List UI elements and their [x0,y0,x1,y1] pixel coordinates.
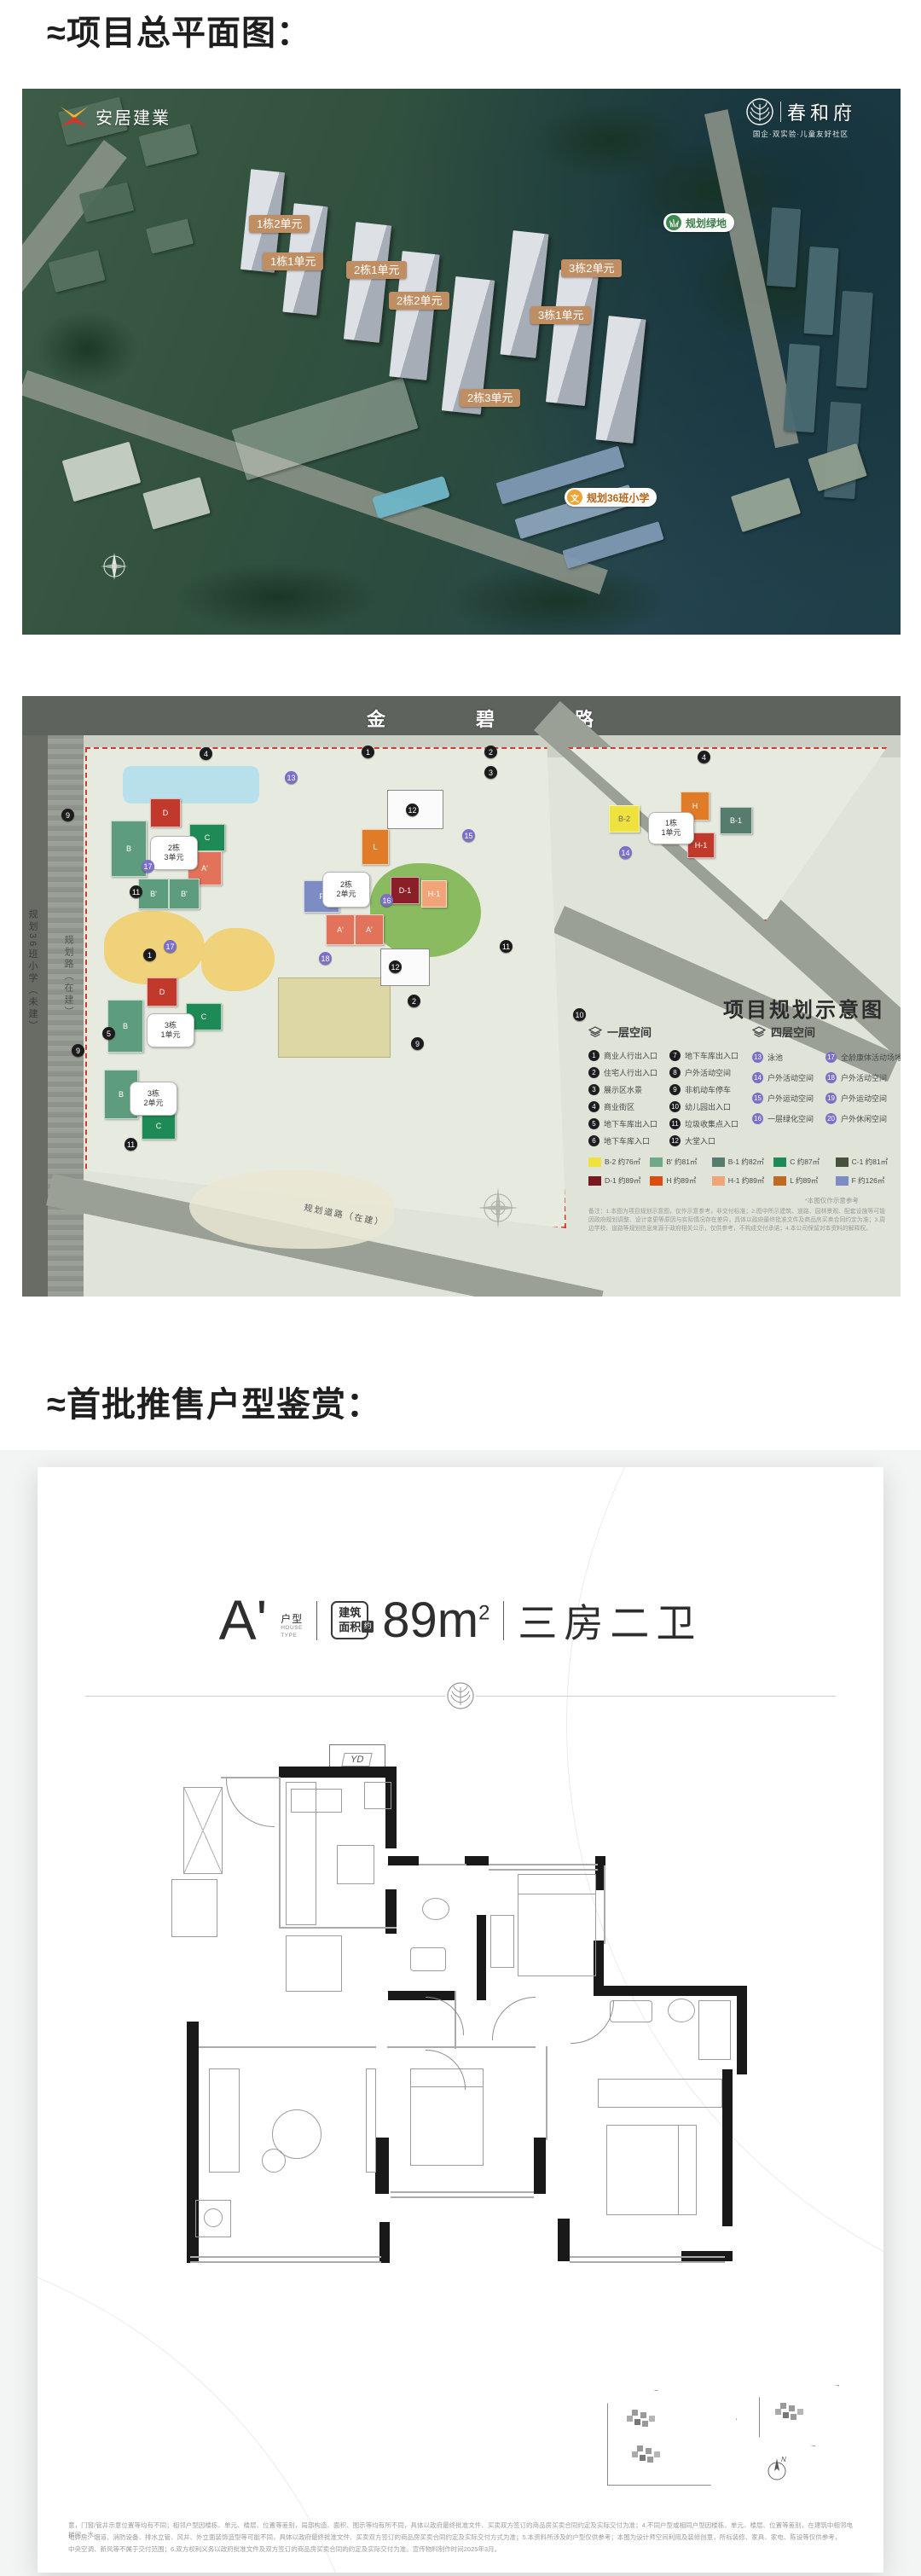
header-divider [503,1601,504,1640]
unit-block: D [150,798,181,827]
unit-swatch: H 约89㎡ [650,1175,706,1186]
furniture-outline [204,2208,223,2227]
forest-blob [36,310,138,387]
legend-item: 8户外活动空间 [669,1064,739,1081]
building-block [767,207,801,287]
floorplan-header: A' 户型 HOUSE TYPE 建筑 面积 约 89m2 三房二卫 [38,1592,883,1649]
unit-swatch: C-1 约81㎡ [836,1157,892,1167]
logo-divider [780,102,781,122]
key-plan-cluster [632,2410,638,2416]
forest-blob [534,102,687,179]
compass-rose-icon [474,1184,522,1232]
furniture-outline [426,1997,464,2035]
unit-block: B [107,1000,143,1053]
unit-block: L [362,829,389,865]
plan-marker: 17 [164,940,177,953]
thin-wall-line [190,2256,381,2258]
furniture-outline [286,1935,342,1992]
legend-first-floor: 一层空间 1商业人行出入口2住宅人行出入口3展示区水景4商业街区5地下车库出入口… [588,1024,739,1149]
thin-wall-line [279,1927,397,1929]
thin-wall-line [190,2261,381,2263]
plan-marker: 13 [285,771,298,784]
ac-platform [183,1787,223,1874]
left-road-label: 规划路（在建） [61,935,75,1018]
furniture-outline [492,1997,536,2040]
thin-wall-line [391,2191,534,2193]
amenity-area [123,766,259,804]
legend-item: 5地下车库出入口 [588,1115,657,1132]
floorplan-disclaimer: 中央空调、新风等不属于交付范围；6.双方权利义务以政府批准文件及双方签订的商品房… [68,2545,853,2555]
unit-subtitle: 户型 HOUSE TYPE [281,1614,303,1639]
tower-label: 1栋2单元 [249,215,310,233]
plan-marker: 9 [61,809,74,821]
floorplan-disclaimer: 电井房、烟道、消防设备、排水立管、风井、外立面装饰造型等可能不同，具体以政府最终… [68,2533,853,2543]
building-block [139,124,198,166]
key-plan-right [759,2385,839,2446]
wall-segment [558,2219,570,2261]
furniture-outline [410,1947,446,1971]
unit-swatch: L 约89㎡ [773,1175,830,1186]
tower-core-label: 3栋 2单元 [130,1082,177,1116]
thin-wall-line [387,2046,536,2048]
plan-marker: 12 [389,960,402,973]
school-badge: 文 规划36班小学 [565,488,657,507]
legend-item: 4商业街区 [588,1098,657,1115]
tower-label: 1栋1单元 [263,252,323,270]
furniture-outline [364,1782,391,1809]
legend-fourth-floor: 四层空间 13泳池14户外活动空间15户外运动空间16一层绿化空间17全龄康体活… [752,1024,901,1128]
tower-label: 2栋2单元 [389,292,449,310]
wall-segment [737,1986,747,2074]
thin-wall-line [279,1777,281,1929]
unit-block: D-1 [391,877,420,904]
wall-segment [594,1986,747,1996]
building-block [62,442,142,502]
road-name-char: 金 [367,705,385,732]
furniture-outline [518,1874,596,1894]
unit-color-legend: B-2 约76㎡B' 约81㎡B-1 约82㎡C 约87㎡C-1 约81㎡D-1… [588,1157,892,1186]
floorplan-card[interactable]: A' 户型 HOUSE TYPE 建筑 面积 约 89m2 三房二卫 YD [38,1467,883,2573]
legend-item: 1商业人行出入口 [588,1047,657,1064]
plan-marker: 11 [130,885,142,898]
project-tower [344,222,391,343]
key-plan-cluster [637,2445,643,2451]
legend-item: 15户外运动空间 [752,1088,814,1108]
wall-segment [279,1767,397,1778]
plan-marker: 4 [698,751,710,763]
legend-item: 9非机动车停车 [669,1081,739,1098]
unit-swatch: C 约87㎡ [773,1157,830,1167]
top-road [22,696,901,735]
legend-item: 3展示区水景 [588,1081,657,1098]
road-name-char: 碧 [476,705,495,732]
legend-item: 2住宅人行出入口 [588,1064,657,1081]
furniture-outline [426,2050,466,2090]
legend-item: 11垃圾收集点入口 [669,1115,739,1132]
unit-swatch: F 约126㎡ [836,1175,892,1186]
legend-item: 7地下车库出入口 [669,1047,739,1064]
legend-title: 一层空间 [607,1024,652,1040]
building-block [808,444,866,492]
approx-badge: 约 [362,1621,374,1633]
unit-block: H-1 [421,880,447,908]
aerial-rendering-image[interactable]: 安居建業 春和府 国企·双实验·儿童友好社区 1栋2单元1栋1单元2栋1单元3栋… [22,89,901,635]
unit-swatch: B-2 约76㎡ [588,1157,645,1167]
legend-title: 四层空间 [771,1024,815,1040]
wall-segment [388,1856,419,1865]
plan-marker: 2 [484,746,497,758]
thin-wall-line [570,2256,725,2258]
furniture-outline [678,2125,697,2215]
legend-item: 10幼儿园出入口 [669,1098,739,1115]
unit-swatch: D-1 约89㎡ [588,1175,645,1186]
legend-item: 16一层绿化空间 [752,1108,814,1128]
site-plan-image[interactable]: 金 碧 路 DBCA'B'B'LFD-1H-1A'A'DBCBCB-2HB-1H… [22,696,901,1297]
project-tower [595,316,646,444]
unit-swatch: B-1 约82㎡ [712,1157,768,1167]
amenity-area [278,978,391,1058]
plan-marker: 11 [500,940,513,953]
legend-item: 17全龄康体活动场地 [825,1047,901,1067]
plan-marker: 9 [411,1037,424,1050]
tower-core-label: 2栋 2单元 [322,872,370,908]
amenity-area [370,863,481,957]
tower-label: 3栋2单元 [561,259,622,277]
furniture-outline [422,1898,449,1920]
units-heading: ≈首批推售户型鉴赏： [47,1377,381,1426]
plan-marker: 11 [125,1138,137,1151]
wall-segment [477,1915,486,2000]
tower-core-label: 1栋 1单元 [648,812,694,844]
unit-swatch: B' 约81㎡ [650,1157,706,1167]
wall-segment [722,2069,733,2226]
grass-icon [666,215,681,230]
thin-wall-line [489,1864,598,1865]
unit-block: A' [355,914,384,945]
legend-item: 6地下车库入口 [588,1132,657,1149]
building-block [783,344,820,432]
north-arrow-icon: N [762,2455,791,2484]
site-plan-note: *本图仅作示意参考 [805,1196,859,1205]
plan-marker: 1 [143,949,156,961]
plan-marker: 15 [462,829,475,842]
unit-name: A' [219,1595,268,1645]
unit-block: B-1 [720,807,752,834]
brand-chunhefu: 春和府 国企·双实验·儿童友好社区 [745,97,856,139]
tower-core-label: 3栋 1单元 [147,1013,194,1047]
furniture-outline [291,1789,342,1813]
school-icon: 文 [567,490,582,505]
legend-item: 18户外活动空间 [825,1067,901,1088]
green-space-badge: 规划绿地 [663,213,734,232]
unit-block: B-2 [609,805,640,833]
area-value: 89m2 [382,1592,489,1649]
furniture-outline [226,1778,275,1827]
brand-right-tagline: 国企·双实验·儿童友好社区 [745,129,856,139]
wall-segment [388,1991,455,2000]
unit-block: B' [138,879,169,909]
tree-emblem-icon [745,97,774,126]
furniture-outline [337,1845,374,1884]
thin-wall-line [604,1865,605,1944]
plan-marker: 18 [319,952,332,965]
anju-ribbon-icon [60,106,89,128]
site-plan-disclaimer: 备注：1.本图为项目规划示意图，仅作示意参考，非交付标准；2.图中所示建筑、道路… [588,1208,885,1234]
layers-icon [588,1026,602,1038]
building-block [146,218,194,253]
plan-marker: 1 [362,746,374,758]
rooms-label: 三房二卫 [518,1593,702,1649]
thin-wall-line [199,2046,376,2048]
legend-item: 19户外运动空间 [825,1088,901,1108]
plan-marker: 16 [380,894,393,907]
tower-label: 3栋1单元 [530,306,591,324]
amenity-area [380,949,430,986]
legend-item: 20户外休闲空间 [825,1108,901,1128]
legend-item: 12大堂入口 [669,1132,739,1149]
furniture-outline [668,1999,695,2022]
area-label-box: 建筑 面积 约 [331,1601,368,1639]
building-block [836,291,873,388]
unit-block: D [147,978,177,1007]
header-divider [316,1601,317,1640]
svg-text:N: N [781,2456,786,2463]
key-plan-cluster [780,2403,786,2409]
unit-block: C [142,1112,176,1140]
plan-marker: 3 [484,766,497,779]
wall-segment [375,2138,389,2194]
unit-swatch: H-1 约89㎡ [712,1175,768,1186]
ac-platform [171,1879,217,1937]
forest-blob [176,563,380,631]
master-plan-heading: ≈项目总平面图： [47,5,311,55]
project-tower [546,270,599,406]
thin-wall-line [419,1864,466,1865]
key-plan-left [607,2390,737,2486]
furniture-outline [698,2000,731,2060]
left-school-label: 规划36班小学（未建） [26,909,39,1032]
thin-wall-line [546,2046,547,2140]
building-block [232,378,419,481]
tower-label: 2栋1单元 [346,261,407,279]
furniture-outline [490,1915,514,1968]
plan-marker: 5 [102,1027,115,1040]
unit-block: A' [326,914,355,945]
furniture-outline [598,2079,722,2108]
thin-wall-line [570,2261,725,2263]
plan-marker: 10 [573,1008,586,1021]
floorplan-drawing: YD [170,1744,758,2273]
furniture-outline [571,2000,614,2044]
furniture-outline [209,2068,240,2173]
tree-emblem-icon [445,1680,476,1711]
furniture-outline [262,2149,286,2173]
brand-left-label: 安居建業 [96,104,171,129]
legend-item: 14户外活动空间 [752,1067,814,1088]
brand-right-label: 春和府 [787,98,856,125]
project-tower [500,230,548,358]
thin-wall-line [489,1869,598,1871]
thin-wall-line [391,2196,534,2198]
compass-icon [97,549,131,583]
plan-marker: 9 [72,1044,84,1057]
tower-label: 2栋3单元 [460,389,520,407]
building-block [562,521,663,569]
tower-core-label: 2栋 3单元 [150,836,198,870]
wall-segment [187,2022,199,2196]
plan-marker: 2 [408,995,420,1007]
layers-icon [752,1026,766,1038]
building-block [803,247,838,335]
building-block [731,478,801,532]
site-plan-title: 项目规划示意图 [723,993,884,1023]
wall-segment [534,2138,546,2194]
building-block [142,477,210,530]
wall-segment [465,1856,489,1865]
building-block [49,250,106,292]
furniture-outline [610,2000,652,2022]
furniture-outline [366,2068,376,2173]
plan-marker: 12 [406,804,419,816]
green-space-label: 规划绿地 [686,216,727,230]
school-label: 规划36班小学 [587,490,649,505]
brand-anjujianye: 安居建業 [60,104,171,129]
plan-marker: 14 [619,846,632,859]
unit-block: B' [169,879,200,909]
plan-marker: 17 [142,860,154,873]
plan-marker: 4 [200,747,212,760]
legend-item: 13泳池 [752,1047,814,1067]
